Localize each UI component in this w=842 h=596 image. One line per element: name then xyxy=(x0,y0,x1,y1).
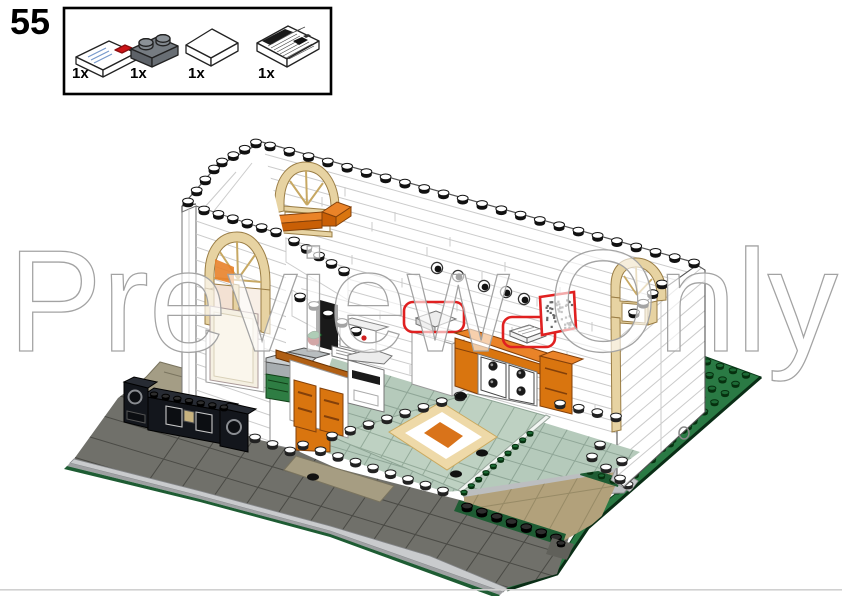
svg-text:1x: 1x xyxy=(130,65,147,82)
svg-text:Preview Only: Preview Only xyxy=(8,220,838,382)
svg-text:1x: 1x xyxy=(188,65,205,82)
svg-text:1x: 1x xyxy=(72,65,89,82)
svg-text:55: 55 xyxy=(10,1,50,42)
svg-text:1x: 1x xyxy=(258,65,275,82)
